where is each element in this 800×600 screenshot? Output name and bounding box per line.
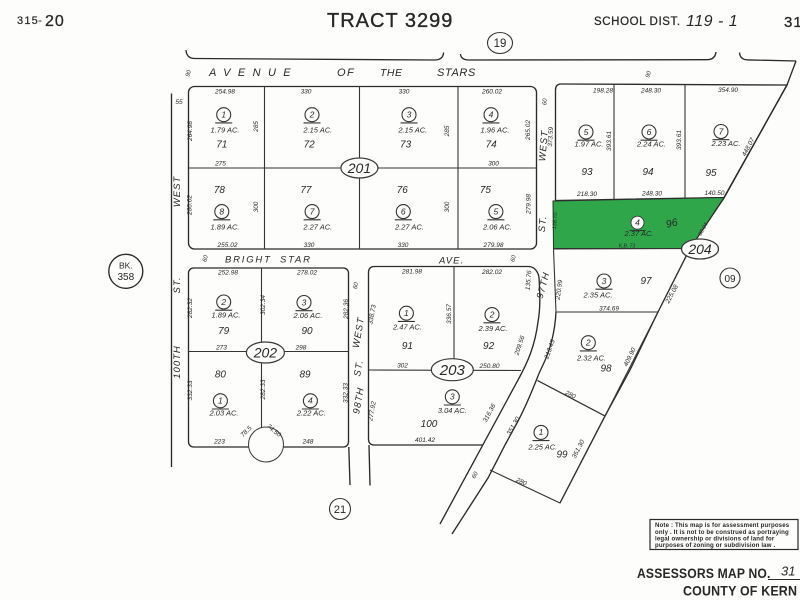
- svg-text:330: 330: [301, 89, 312, 96]
- svg-text:300: 300: [444, 201, 451, 212]
- svg-text:2.23 AC.: 2.23 AC.: [711, 139, 741, 148]
- svg-text:60: 60: [542, 98, 549, 106]
- svg-text:198.28: 198.28: [593, 88, 613, 95]
- svg-text:4: 4: [308, 396, 313, 406]
- svg-text:1.89 AC.: 1.89 AC.: [211, 223, 240, 232]
- svg-text:3: 3: [302, 297, 307, 307]
- svg-text:6: 6: [401, 206, 406, 216]
- svg-text:97: 97: [640, 276, 652, 287]
- svg-text:315: 315: [17, 15, 39, 27]
- svg-text:354.90: 354.90: [718, 87, 738, 94]
- svg-text:2: 2: [220, 297, 226, 307]
- svg-text:281.98: 281.98: [401, 269, 422, 276]
- svg-text:300: 300: [488, 161, 499, 168]
- svg-text:248: 248: [302, 439, 314, 446]
- svg-text:140.50: 140.50: [705, 190, 725, 197]
- svg-text:2.27 AC.: 2.27 AC.: [394, 223, 424, 232]
- svg-text:1.97 AC.: 1.97 AC.: [575, 140, 604, 149]
- svg-text:ST.: ST.: [537, 215, 549, 233]
- svg-text:93: 93: [581, 167, 593, 178]
- svg-text:1.79 AC.: 1.79 AC.: [211, 126, 240, 135]
- svg-text:330: 330: [399, 89, 410, 96]
- svg-text:2: 2: [309, 110, 315, 120]
- svg-text:255.02: 255.02: [217, 242, 238, 249]
- svg-text:2.06 AC.: 2.06 AC.: [293, 311, 323, 320]
- svg-text:203: 203: [439, 362, 466, 379]
- svg-text:19: 19: [494, 38, 507, 50]
- svg-text:BRIGHT: BRIGHT: [225, 255, 272, 266]
- svg-text:223: 223: [213, 439, 225, 446]
- svg-text:332.33: 332.33: [343, 383, 350, 403]
- svg-text:285: 285: [444, 125, 451, 137]
- svg-text:5: 5: [584, 127, 589, 137]
- svg-text:STAR: STAR: [280, 255, 312, 266]
- svg-text:3.04 AC.: 3.04 AC.: [438, 406, 467, 415]
- svg-text:300: 300: [253, 201, 260, 212]
- svg-text:2: 2: [585, 338, 591, 348]
- svg-text:2: 2: [489, 309, 495, 319]
- svg-text:31: 31: [784, 14, 800, 31]
- svg-text:265.02: 265.02: [525, 120, 532, 141]
- svg-text:285: 285: [253, 121, 260, 133]
- svg-text:138.70: 138.70: [552, 211, 559, 229]
- svg-text:373.59: 373.59: [547, 126, 555, 147]
- svg-text:ASSESSORS MAP NO.: ASSESSORS MAP NO.: [637, 565, 771, 581]
- svg-text:282.36: 282.36: [343, 299, 350, 320]
- svg-text:2.15 AC.: 2.15 AC.: [302, 126, 332, 135]
- svg-text:20: 20: [45, 13, 65, 30]
- svg-text:95: 95: [705, 168, 717, 179]
- svg-text:280.02: 280.02: [187, 195, 194, 216]
- svg-text:2.15 AC.: 2.15 AC.: [397, 126, 427, 135]
- svg-text:264.98: 264.98: [187, 121, 194, 142]
- svg-text:1: 1: [404, 308, 409, 318]
- svg-text:4: 4: [635, 218, 640, 228]
- svg-text:1: 1: [539, 427, 544, 437]
- svg-text:2.37 AC.: 2.37 AC.: [624, 229, 654, 238]
- svg-text:2.22 AC.: 2.22 AC.: [296, 409, 326, 418]
- svg-text:2.03 AC.: 2.03 AC.: [209, 409, 239, 418]
- svg-text:248.30: 248.30: [641, 191, 662, 198]
- svg-text:279.98: 279.98: [526, 194, 533, 215]
- svg-text:100TH: 100TH: [172, 345, 183, 379]
- svg-text:336.57: 336.57: [446, 304, 453, 324]
- svg-text:2.32 AC.: 2.32 AC.: [576, 354, 606, 363]
- svg-text:2.24 AC.: 2.24 AC.: [636, 140, 666, 149]
- svg-text:STARS: STARS: [437, 67, 476, 79]
- svg-text:282.02: 282.02: [481, 269, 502, 276]
- svg-text:73: 73: [400, 140, 412, 151]
- svg-text:BK.: BK.: [119, 261, 133, 271]
- svg-text:4: 4: [489, 110, 494, 120]
- svg-text:AVENUE: AVENUE: [208, 67, 298, 79]
- svg-text:TRACT 3299: TRACT 3299: [327, 10, 453, 32]
- svg-text:AVE.: AVE.: [438, 256, 464, 267]
- svg-text:260.02: 260.02: [481, 89, 502, 96]
- svg-text:2.27 AC.: 2.27 AC.: [302, 223, 332, 232]
- svg-text:275: 275: [214, 161, 226, 168]
- svg-text:SCHOOL DIST.: SCHOOL DIST.: [594, 16, 681, 28]
- svg-text:278.02: 278.02: [296, 270, 317, 277]
- svg-text:100: 100: [421, 419, 438, 430]
- svg-text:1.89 AC.: 1.89 AC.: [212, 311, 241, 320]
- svg-text:2.47 AC.: 2.47 AC.: [392, 323, 422, 332]
- svg-text:purposes of zoning or subdivis: purposes of zoning or subdivision law .: [655, 542, 775, 549]
- svg-text:89: 89: [299, 370, 311, 381]
- svg-text:98: 98: [600, 364, 612, 375]
- svg-text:55: 55: [175, 99, 183, 106]
- svg-text:2.35 AC.: 2.35 AC.: [583, 291, 613, 300]
- svg-text:279.98: 279.98: [483, 242, 504, 249]
- svg-text:302: 302: [397, 363, 408, 370]
- svg-text:358: 358: [117, 272, 134, 283]
- svg-text:393.61: 393.61: [676, 130, 683, 150]
- svg-text:298: 298: [295, 345, 307, 352]
- svg-text:330: 330: [398, 242, 409, 249]
- svg-text:OF: OF: [337, 67, 355, 79]
- svg-text:80: 80: [215, 370, 227, 381]
- svg-text:2.25 AC.: 2.25 AC.: [527, 443, 557, 452]
- svg-text:332.33: 332.33: [187, 380, 194, 400]
- svg-text:1: 1: [218, 396, 223, 406]
- svg-text:3: 3: [450, 392, 455, 402]
- svg-text:5: 5: [494, 206, 499, 216]
- svg-text:252.98: 252.98: [217, 270, 238, 277]
- svg-text:2.06 AC.: 2.06 AC.: [482, 223, 512, 232]
- svg-text:-: -: [38, 13, 42, 27]
- svg-text:393.61: 393.61: [606, 131, 613, 151]
- svg-text:202: 202: [253, 345, 278, 361]
- svg-text:71: 71: [216, 140, 227, 151]
- svg-text:31: 31: [781, 564, 795, 579]
- svg-text:254.98: 254.98: [214, 89, 235, 96]
- svg-text:6: 6: [647, 127, 652, 137]
- svg-text:330: 330: [304, 242, 315, 249]
- svg-text:ST.: ST.: [172, 277, 183, 294]
- svg-text:77: 77: [300, 185, 312, 196]
- svg-text:75: 75: [480, 185, 492, 196]
- svg-text:72: 72: [304, 140, 316, 151]
- svg-text:302.34: 302.34: [260, 295, 267, 315]
- svg-text:7: 7: [719, 126, 724, 136]
- svg-text:91: 91: [402, 341, 413, 352]
- svg-text:94: 94: [642, 167, 654, 178]
- svg-text:204: 204: [687, 241, 712, 257]
- svg-text:1: 1: [221, 110, 226, 120]
- svg-text:78: 78: [214, 185, 226, 196]
- svg-text:7: 7: [310, 206, 315, 216]
- svg-text:3: 3: [602, 276, 607, 286]
- svg-text:99: 99: [556, 450, 568, 461]
- svg-text:119 - 1: 119 - 1: [686, 13, 738, 30]
- svg-text:250.80: 250.80: [479, 363, 500, 370]
- svg-text:218.30: 218.30: [576, 191, 597, 198]
- svg-text:2.39 AC.: 2.39 AC.: [478, 324, 508, 333]
- svg-text:74: 74: [486, 140, 498, 151]
- svg-text:THE: THE: [380, 67, 403, 79]
- svg-text:21: 21: [334, 504, 346, 516]
- svg-text:92: 92: [483, 341, 495, 352]
- svg-text:282.32: 282.32: [187, 298, 194, 319]
- svg-text:248.30: 248.30: [640, 88, 661, 95]
- svg-text:09: 09: [724, 274, 736, 285]
- svg-text:8: 8: [219, 206, 224, 216]
- svg-text:COUNTY OF KERN: COUNTY OF KERN: [683, 583, 797, 599]
- svg-text:79: 79: [218, 326, 230, 337]
- svg-text:401.42: 401.42: [415, 437, 435, 444]
- svg-text:3: 3: [407, 110, 412, 120]
- svg-text:90: 90: [301, 326, 313, 337]
- svg-text:76: 76: [397, 185, 409, 196]
- svg-text:1.96 AC.: 1.96 AC.: [481, 126, 510, 135]
- svg-text:273: 273: [215, 345, 227, 352]
- svg-text:282.33: 282.33: [260, 379, 267, 400]
- svg-text:201: 201: [347, 160, 371, 176]
- svg-text:WEST: WEST: [172, 176, 183, 208]
